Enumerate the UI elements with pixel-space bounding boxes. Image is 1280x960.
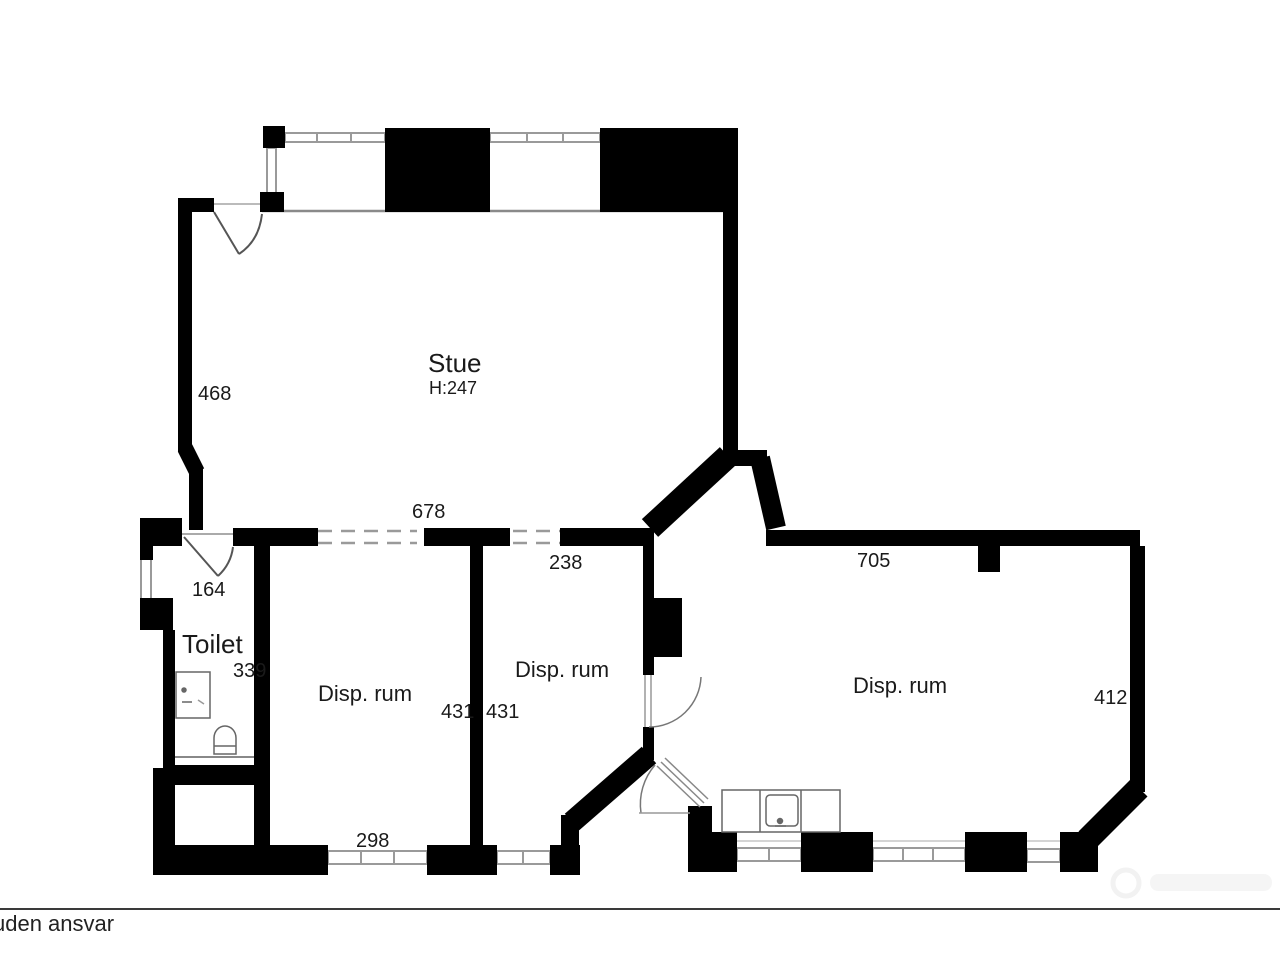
room-label-disp-right: Disp. rum — [853, 673, 947, 699]
window-south-right3 — [1027, 849, 1060, 862]
window-bay-left — [285, 133, 385, 142]
walls — [140, 126, 1145, 875]
dimension-678: 678 — [412, 501, 445, 524]
window-west-wall — [141, 558, 151, 600]
dimension-412: 412 — [1094, 687, 1127, 710]
dimension-705: 705 — [857, 550, 890, 573]
dimension-339: 339 — [233, 660, 266, 683]
room-label-disp-middle: Disp. rum — [515, 657, 609, 683]
room-label-disp-left: Disp. rum — [318, 681, 412, 707]
dimension-298: 298 — [356, 830, 389, 853]
kitchen-counter — [722, 790, 840, 832]
windows — [141, 133, 1060, 864]
footer-divider — [0, 908, 1280, 910]
door-middle-to-right — [645, 675, 701, 727]
window-south-right2 — [873, 848, 965, 861]
footer-disclaimer: uden ansvar — [0, 911, 114, 937]
window-bay-right — [490, 133, 600, 142]
door-stue-entrance — [214, 212, 262, 254]
watermark — [1113, 870, 1272, 896]
sill-lines — [180, 204, 1090, 841]
ceiling-height-label: H:247 — [429, 378, 477, 399]
window-bay-side — [267, 148, 276, 194]
fixtures — [175, 672, 840, 832]
dimension-164: 164 — [192, 579, 225, 602]
dimension-431-right: 431 — [486, 701, 519, 724]
dimension-468: 468 — [198, 383, 231, 406]
floorplan-drawing — [0, 0, 1280, 960]
dimension-238: 238 — [549, 552, 582, 575]
bathroom-sink — [176, 672, 210, 718]
dimension-431-left: 431 — [441, 701, 474, 724]
room-label-stue: Stue — [428, 348, 482, 379]
door-toilet — [184, 537, 233, 576]
floorplan-page: Stue H:247 Toilet Disp. rum Disp. rum Di… — [0, 0, 1280, 960]
room-label-toilet: Toilet — [182, 629, 243, 660]
toilet-bowl — [214, 726, 236, 754]
